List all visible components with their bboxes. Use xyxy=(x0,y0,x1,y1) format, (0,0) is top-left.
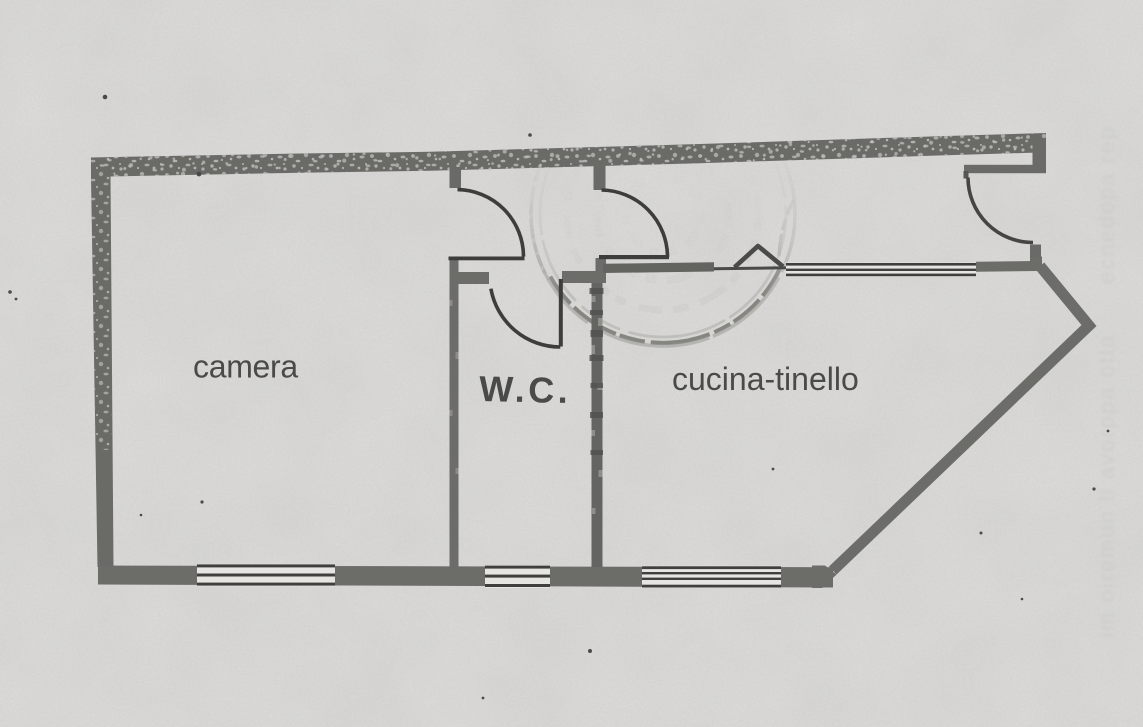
svg-text:W.C.: W.C. xyxy=(479,368,572,411)
svg-text:im oiremun li avorppa otla: im oiremun li avorppa otla xyxy=(1094,334,1119,638)
svg-text:ecnedopa rep: ecnedopa rep xyxy=(1094,125,1119,284)
svg-text:cucina-tinello: cucina-tinello xyxy=(672,361,859,397)
svg-text:camera: camera xyxy=(193,349,298,385)
